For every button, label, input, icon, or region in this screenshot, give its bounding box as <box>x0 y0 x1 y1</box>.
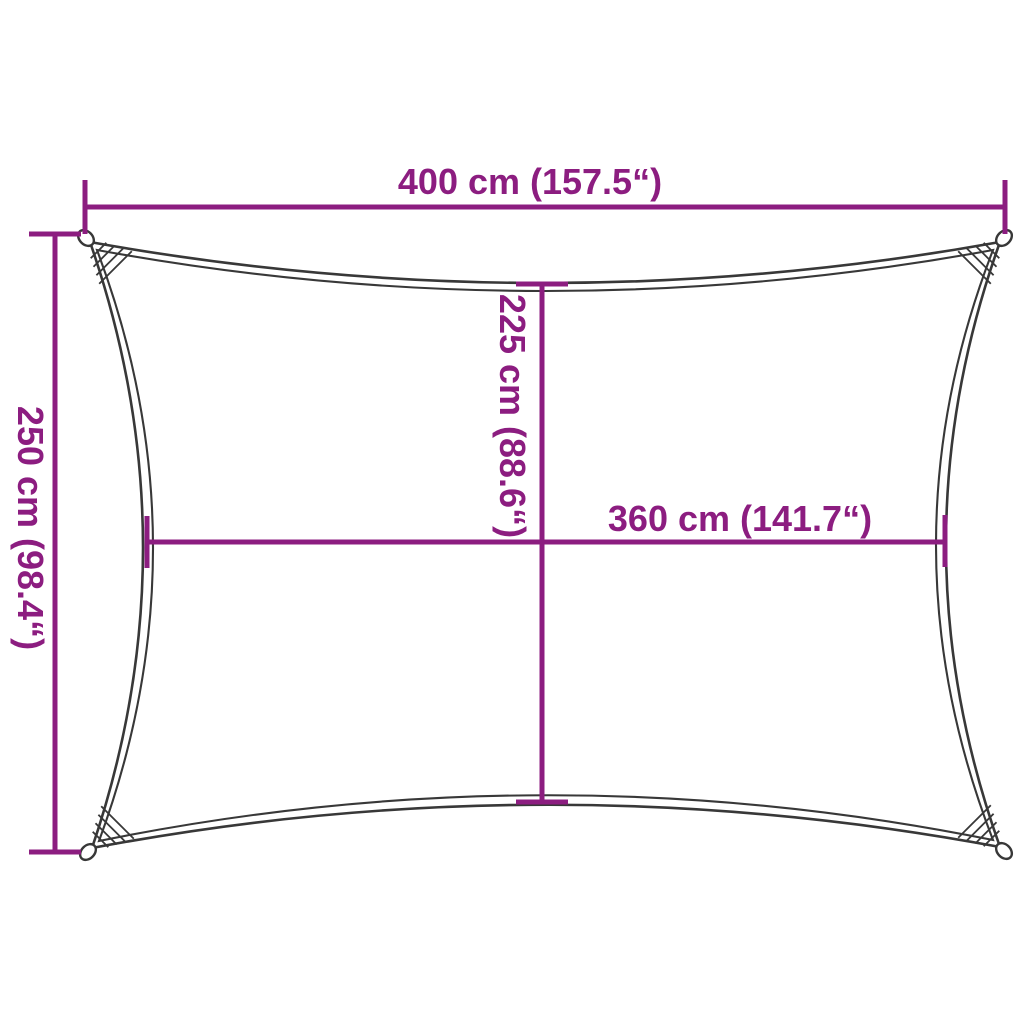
dimension-center-width: 360 cm (141.7“) <box>147 498 945 568</box>
sail-outer-edge <box>90 242 1000 848</box>
dimension-label-center-height: 225 cm (88.6“) <box>492 294 533 538</box>
sail-inner-edge <box>97 250 993 841</box>
dimension-diagram: 400 cm (157.5“) 250 cm (98.4“) 225 cm (8… <box>0 0 1024 1024</box>
dimension-top-width: 400 cm (157.5“) <box>85 161 1005 234</box>
shade-sail-diagram-svg: 400 cm (157.5“) 250 cm (98.4“) 225 cm (8… <box>0 0 1024 1024</box>
dimension-label-top-width: 400 cm (157.5“) <box>398 161 662 202</box>
dimension-side-height: 250 cm (98.4“) <box>10 234 81 852</box>
dimension-label-center-width: 360 cm (141.7“) <box>608 498 872 539</box>
shade-sail-outline <box>90 242 1000 848</box>
corner-ring-bottom-right <box>993 840 1015 862</box>
dimension-label-side-height: 250 cm (98.4“) <box>10 406 51 650</box>
